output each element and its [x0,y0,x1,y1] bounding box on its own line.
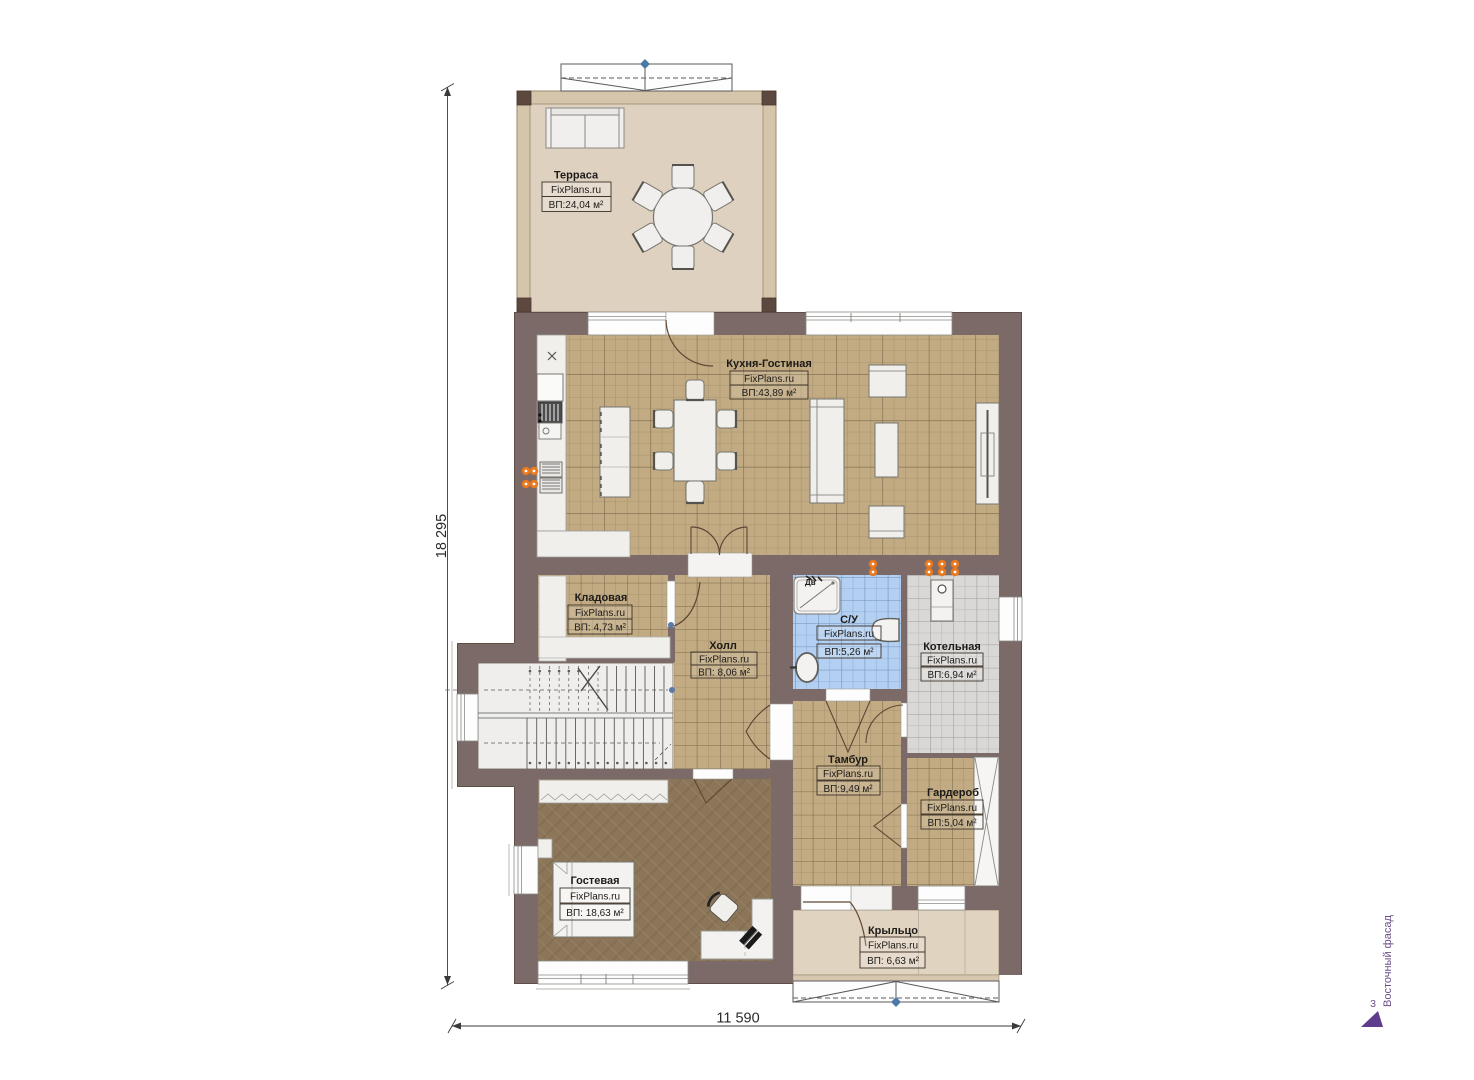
svg-text:18 295: 18 295 [434,514,450,558]
svg-text:ВП: 4,73 м²: ВП: 4,73 м² [574,623,627,634]
svg-text:ВП:5,04 м²: ВП:5,04 м² [927,818,977,829]
svg-text:ВП:24,04 м²: ВП:24,04 м² [549,200,604,211]
svg-text:FixPlans.ru: FixPlans.ru [699,655,749,666]
svg-text:ВП:43,89 м²: ВП:43,89 м² [742,388,797,399]
svg-text:FixPlans.ru: FixPlans.ru [927,803,977,814]
svg-text:ВП: 6,63 м²: ВП: 6,63 м² [867,956,920,967]
svg-text:Котельная: Котельная [923,641,981,653]
svg-text:FixPlans.ru: FixPlans.ru [551,185,601,196]
svg-text:FixPlans.ru: FixPlans.ru [824,629,874,640]
svg-text:ВП: 18,63 м²: ВП: 18,63 м² [566,908,624,919]
svg-text:FixPlans.ru: FixPlans.ru [744,374,794,385]
svg-text:FixPlans.ru: FixPlans.ru [575,608,625,619]
svg-text:ВП:9,49 м²: ВП:9,49 м² [823,784,873,795]
svg-text:FixPlans.ru: FixPlans.ru [927,656,977,667]
svg-text:11 590: 11 590 [716,1011,759,1027]
svg-text:FixPlans.ru: FixPlans.ru [868,941,918,952]
svg-text:ВП:6,94 м²: ВП:6,94 м² [927,670,977,681]
svg-text:3: 3 [1370,998,1376,1010]
svg-text:FixPlans.ru: FixPlans.ru [570,892,620,903]
svg-text:Гардероб: Гардероб [927,787,979,799]
svg-text:Терраса: Терраса [554,170,599,182]
svg-text:Холл: Холл [709,640,737,652]
svg-text:Дв: Дв [805,578,816,587]
svg-text:Крыльцо: Крыльцо [868,925,918,937]
svg-text:Восточный фасад: Восточный фасад [1382,915,1394,1007]
svg-text:Гостевая: Гостевая [570,875,619,887]
svg-text:ВП: 8,06 м²: ВП: 8,06 м² [698,668,751,679]
svg-text:FixPlans.ru: FixPlans.ru [823,769,873,780]
svg-text:Кладовая: Кладовая [575,592,628,604]
svg-text:Кухня-Гостиная: Кухня-Гостиная [726,358,812,370]
svg-text:ВП:5,26 м²: ВП:5,26 м² [824,647,874,658]
svg-text:С/У: С/У [840,614,858,626]
svg-text:Тамбур: Тамбур [828,754,868,766]
